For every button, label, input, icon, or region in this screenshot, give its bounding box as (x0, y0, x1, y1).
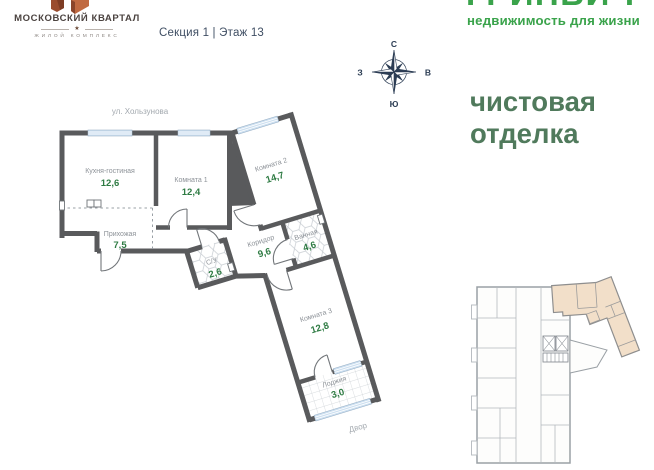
room-label-room3: Комната 3 12,8 (299, 308, 337, 339)
floor-plan: Кухня-гостиная 12,6 Комната 1 12,4 Прихо… (60, 112, 380, 443)
compass-main-star (372, 50, 416, 94)
building-mini-plan (472, 275, 640, 463)
street-label: ул. Хользунова (112, 107, 169, 116)
room-label-room1: Комната 1 12,4 (174, 177, 207, 198)
svg-text:12,8: 12,8 (309, 320, 330, 336)
room-label-kitchen-living: Кухня-гостиная 12,6 (85, 168, 135, 189)
svg-text:Прихожая: Прихожая (104, 231, 137, 238)
svg-text:9,6: 9,6 (257, 246, 273, 260)
svg-text:12,6: 12,6 (101, 178, 120, 189)
room-label-room2: Комната 2 14,7 (254, 157, 292, 188)
room-label-hallway: Прихожая 7,5 (104, 231, 137, 251)
yard-label: Двор (348, 421, 369, 435)
compass-rose: С В Ю З (357, 39, 431, 109)
svg-text:14,7: 14,7 (265, 170, 286, 186)
plan-canvas: ул. Хользунова Двор (0, 0, 654, 470)
svg-text:Кухня-гостиная: Кухня-гостиная (85, 168, 135, 175)
compass-south: Ю (390, 99, 399, 109)
compass-east: В (425, 68, 431, 78)
svg-text:7,5: 7,5 (113, 240, 127, 251)
svg-text:Комната 3: Комната 3 (299, 308, 333, 324)
open-plan-dashed-line (62, 208, 153, 250)
svg-text:Комната 2: Комната 2 (254, 157, 288, 173)
svg-text:Комната 1: Комната 1 (174, 177, 207, 184)
room1-window (178, 130, 210, 136)
svg-text:Коридор: Коридор (247, 234, 276, 249)
svg-text:12,4: 12,4 (182, 187, 201, 198)
flat-plan-sheet: МОСКОВСКИЙ КВАРТАЛ ★ ЖИЛОЙ КОМПЛЕКС Секц… (0, 0, 654, 470)
room-label-corridor: Коридор 9,6 (247, 234, 280, 262)
mini-plan-balconies (472, 305, 478, 455)
compass-west: З (357, 68, 362, 78)
room2-window (237, 116, 279, 134)
compass-north: С (391, 39, 397, 49)
kitchen-window (88, 130, 132, 136)
plan-walls (60, 133, 233, 252)
plan-rotated-wing: Комната 2 14,7 Коридор 9,6 Ванная 4,6 С/… (157, 112, 380, 443)
